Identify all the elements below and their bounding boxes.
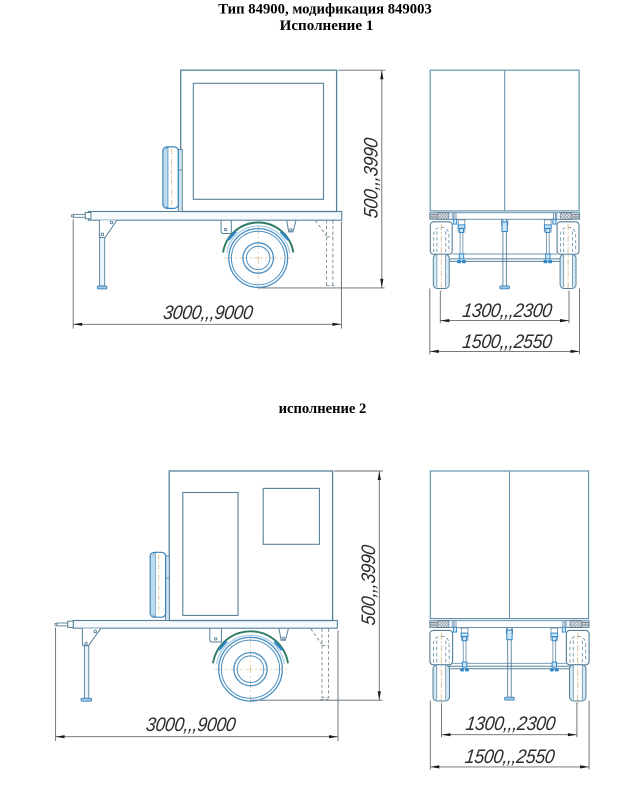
svg-text:3000,,,9000: 3000,,,9000	[162, 301, 255, 323]
svg-text:1300,,,2300: 1300,,,2300	[465, 712, 558, 734]
svg-text:Исполнение 1: Исполнение 1	[280, 18, 374, 34]
svg-text:1500,,,2550: 1500,,,2550	[464, 745, 557, 767]
svg-text:500,,,3990: 500,,,3990	[360, 136, 382, 219]
svg-text:3000,,,9000: 3000,,,9000	[145, 713, 238, 735]
svg-text:1300,,,2300: 1300,,,2300	[461, 299, 554, 321]
svg-text:Тип 84900, модификация 849003: Тип 84900, модификация 849003	[218, 2, 432, 18]
svg-text:1500,,,2550: 1500,,,2550	[461, 330, 554, 352]
svg-text:500,,,3990: 500,,,3990	[357, 543, 379, 626]
svg-text:исполнение 2: исполнение 2	[279, 401, 367, 417]
